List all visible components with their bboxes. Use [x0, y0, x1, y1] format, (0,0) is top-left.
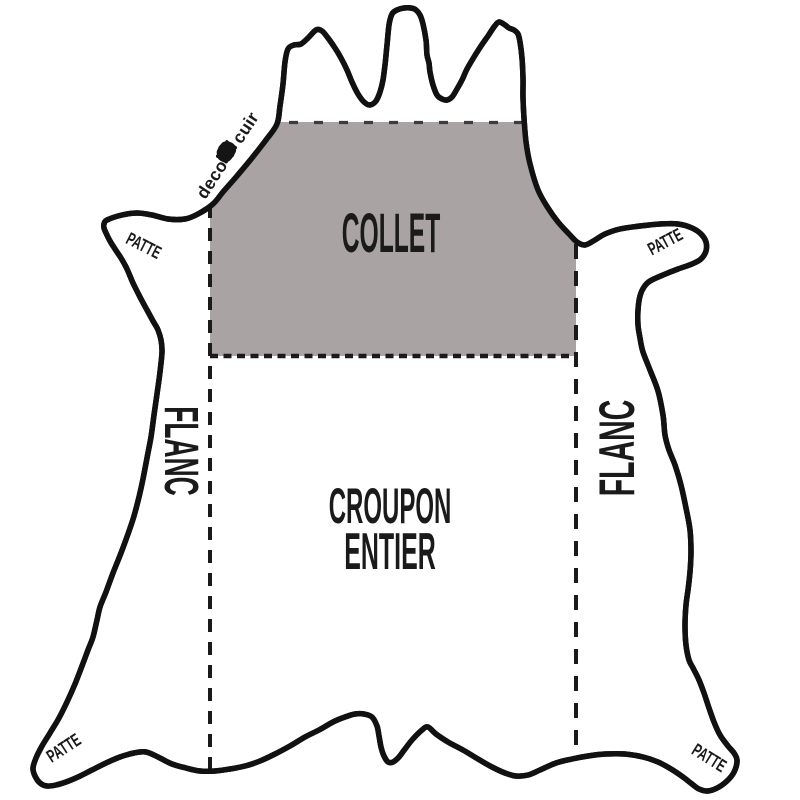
- svg-text:COLLET: COLLET: [342, 203, 441, 265]
- svg-text:ENTIER: ENTIER: [344, 522, 435, 581]
- svg-text:FLANC: FLANC: [154, 406, 207, 495]
- svg-text:FLANC: FLANC: [589, 400, 646, 497]
- svg-text:cuir: cuir: [228, 108, 263, 147]
